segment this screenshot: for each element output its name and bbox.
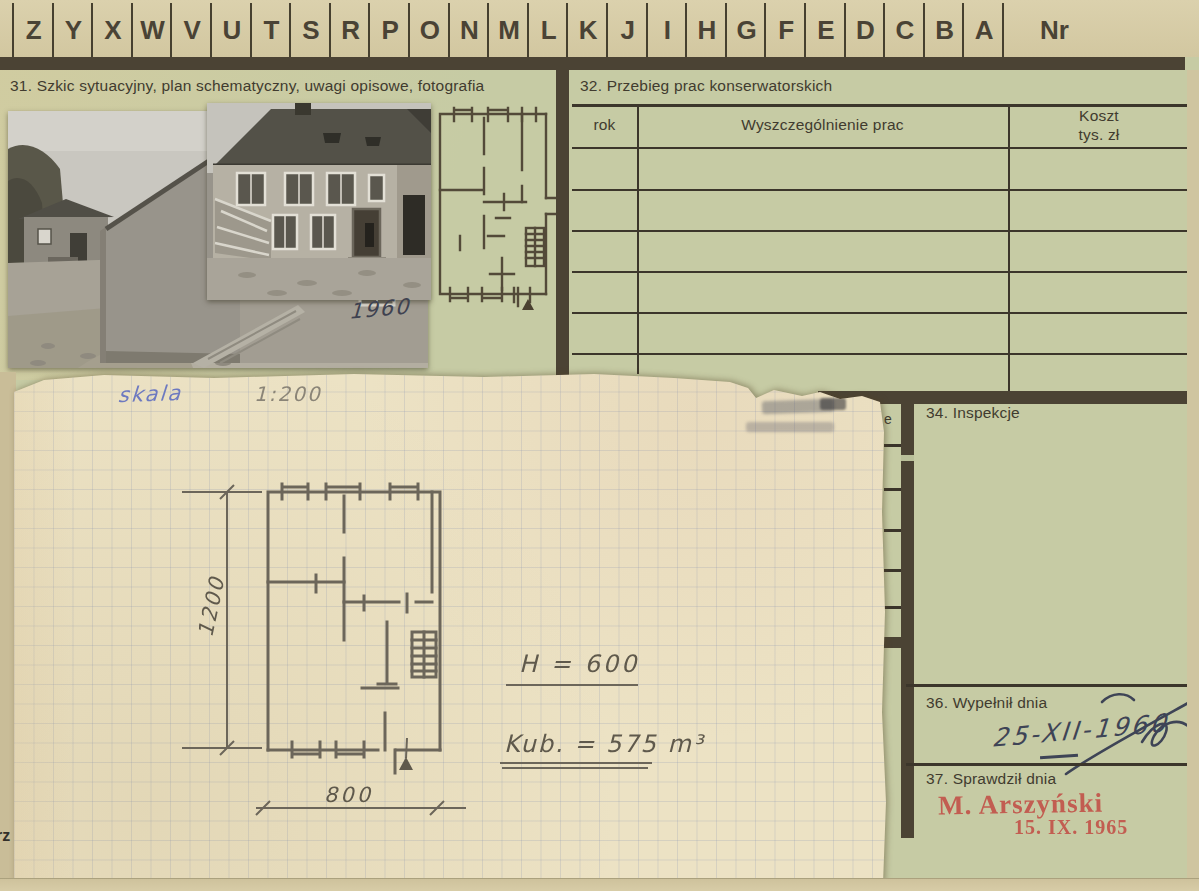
dim-label-width: 800 xyxy=(324,783,373,807)
index-tab-letter: J xyxy=(606,3,648,57)
card-edge-bottom xyxy=(0,878,1199,891)
index-tab-letter: R xyxy=(329,3,371,57)
index-tab-letter: I xyxy=(646,3,688,57)
index-tab-letter: H xyxy=(685,3,727,57)
volume-note: Kub. = 575 m³ xyxy=(504,730,704,758)
index-tab-letter: E xyxy=(804,3,846,57)
document-card: ZYXWVUTSRPONMLKJIHGFEDCBA Nr 31. Szkic s… xyxy=(0,0,1199,891)
table-row-line xyxy=(572,353,1190,355)
index-tab-letter: C xyxy=(883,3,925,57)
col-header-works: Wyszczególnienie prac xyxy=(637,116,1008,134)
scale-note-value: 1:200 xyxy=(254,382,322,406)
table-header-bottom-line xyxy=(572,147,1190,149)
index-tab-letter: K xyxy=(566,3,608,57)
table-row-line xyxy=(572,230,1190,232)
index-tab-letter: Z xyxy=(12,3,54,57)
col-header-cost-line1: Koszt xyxy=(1008,107,1190,125)
index-tab-letter: V xyxy=(170,3,212,57)
table-row-line xyxy=(572,189,1190,191)
card-edge-right xyxy=(1187,70,1199,880)
section-31-title: 31. Szkic sytuacyjny, plan schematyczny,… xyxy=(10,77,484,95)
verifier-stamp-date: 15. IX. 1965 xyxy=(1014,816,1128,839)
index-tab-letter: L xyxy=(527,3,569,57)
index-tab-letter: X xyxy=(91,3,133,57)
ink-floor-plan xyxy=(430,98,556,328)
index-tab-letter: B xyxy=(923,3,965,57)
index-tab-letter: A xyxy=(962,3,1004,57)
index-tab-letter: U xyxy=(210,3,252,57)
scale-note-word: skala xyxy=(117,381,183,407)
volume-note-underline xyxy=(502,767,648,769)
index-tab-letter: S xyxy=(289,3,331,57)
dim-label-height: 1200 xyxy=(193,574,229,639)
divider-line-37 xyxy=(906,763,1190,766)
index-tab-letter: T xyxy=(250,3,292,57)
section-36-title: 36. Wypełnił dnia xyxy=(926,694,1047,712)
divider-bar-gap xyxy=(901,455,914,461)
graph-paper-sheet: skala 1:200 xyxy=(14,372,888,884)
signature-flourish xyxy=(1058,688,1198,783)
bleedthrough-smudge xyxy=(746,422,834,432)
index-tab-letter: M xyxy=(487,3,529,57)
section-32-title: 32. Przebieg prac konserwatorskich xyxy=(580,77,832,95)
divider-line-36 xyxy=(906,684,1190,687)
index-tab-letter: Y xyxy=(52,3,94,57)
col-header-cost-line2: tys. zł xyxy=(1008,126,1190,144)
table-row-line xyxy=(572,312,1190,314)
pencil-floor-plan: 1200 800 xyxy=(174,472,486,820)
index-tab-letter: O xyxy=(408,3,450,57)
index-tab-letter: N xyxy=(448,3,490,57)
corner-text-fragment: rz xyxy=(0,827,10,845)
section-34-title: 34. Inspekcje xyxy=(926,404,1020,422)
index-tab-letter: D xyxy=(844,3,886,57)
section-37-title: 37. Sprawdził dnia xyxy=(926,770,1056,788)
index-tab-nr: Nr xyxy=(1002,3,1199,57)
table-col-line-year xyxy=(637,104,639,374)
col-header-year: rok xyxy=(572,116,637,134)
table-col-line-cost xyxy=(1008,104,1010,392)
section-divider-vertical xyxy=(556,70,569,377)
photo-facade xyxy=(207,103,431,300)
height-note-underline xyxy=(506,684,638,686)
graph-paper: skala 1:200 xyxy=(14,372,888,884)
height-note: H = 600 xyxy=(519,650,639,678)
table-row-line xyxy=(572,271,1190,273)
volume-note-underline xyxy=(500,762,652,764)
bleedthrough-smudge xyxy=(820,398,846,410)
index-tab-letter: P xyxy=(368,3,410,57)
index-tab-letter: W xyxy=(131,3,173,57)
header-separator-bar xyxy=(0,57,1185,70)
index-tab-letter: G xyxy=(725,3,767,57)
index-tab-letter: F xyxy=(764,3,806,57)
index-tab-row: ZYXWVUTSRPONMLKJIHGFEDCBA Nr xyxy=(0,0,1199,57)
right-column-divider-bar xyxy=(901,398,914,838)
